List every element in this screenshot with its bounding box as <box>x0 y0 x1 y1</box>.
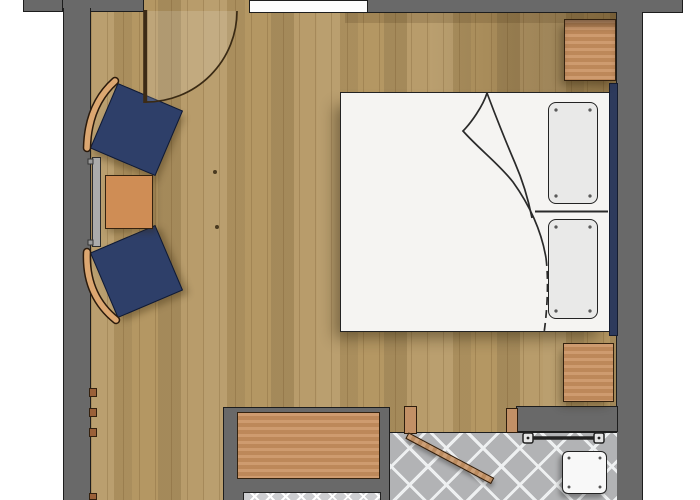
nightstand-bottom-right <box>563 343 614 402</box>
luggage-rack <box>243 492 381 500</box>
left-wall <box>63 8 91 500</box>
floor-plan-canvas <box>0 0 700 500</box>
shower-stool <box>562 451 607 494</box>
radiator <box>92 157 101 247</box>
top-wall-stub-left <box>23 0 63 12</box>
door-jamb-right <box>506 408 518 433</box>
side-table <box>105 175 153 229</box>
desk-unit <box>223 407 390 500</box>
wall-hook <box>89 493 97 500</box>
bedroom-bathroom-wall <box>516 406 618 432</box>
desk-top <box>237 412 380 479</box>
wall-hook <box>89 408 97 417</box>
wall-hook <box>89 388 97 397</box>
headboard <box>609 83 618 336</box>
pillow-top <box>548 102 598 204</box>
right-wall <box>616 12 643 500</box>
nightstand-top-right <box>564 19 616 81</box>
window <box>249 0 368 13</box>
wall-hook <box>89 428 97 437</box>
door-jamb-left <box>404 406 417 434</box>
pillow-bottom <box>548 219 598 319</box>
